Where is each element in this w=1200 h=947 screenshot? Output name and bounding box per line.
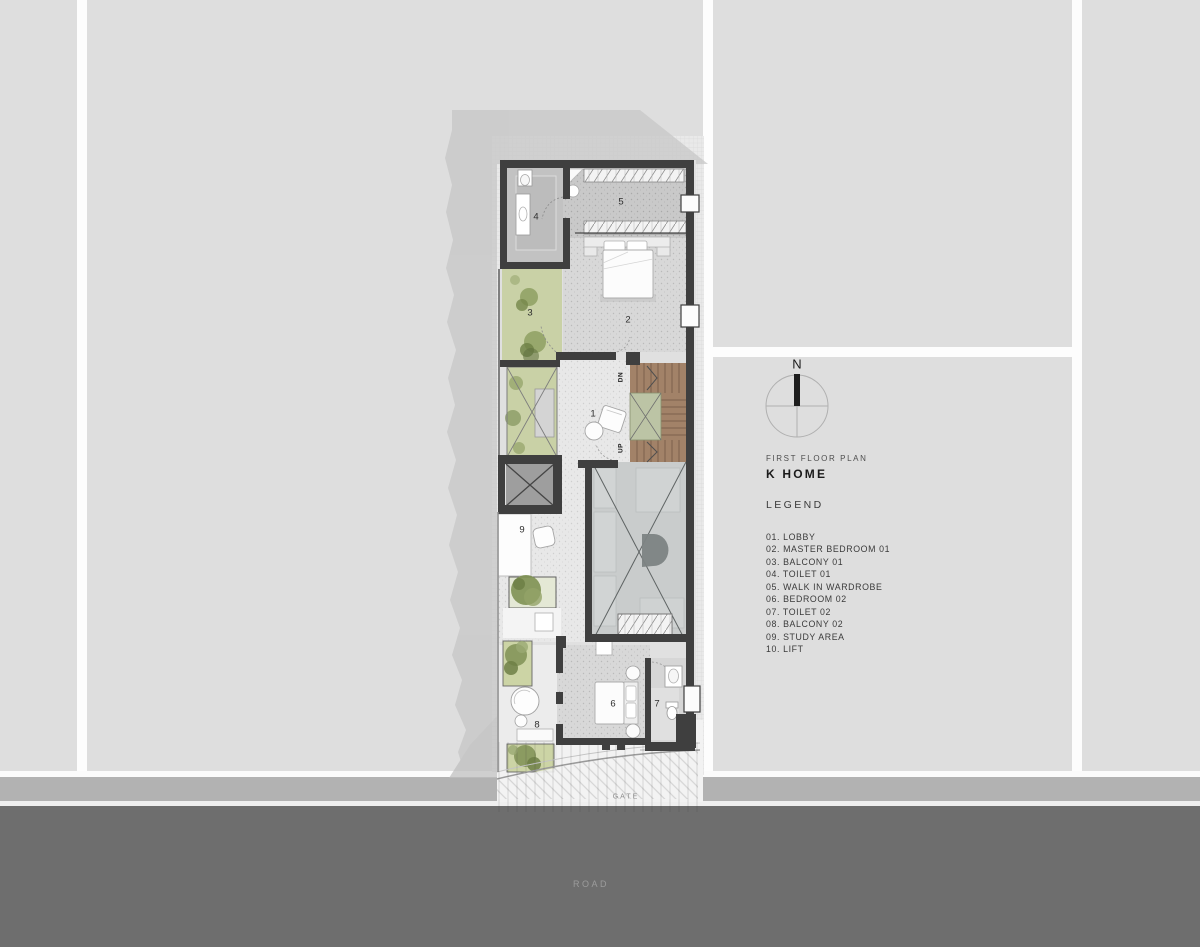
legend-heading: LEGEND [766, 499, 824, 511]
label-walk-in-wardrobe: 5 [618, 197, 623, 208]
label-master-bedroom-01: 2 [625, 315, 630, 326]
label-bedroom-02: 6 [610, 699, 615, 710]
stair-up-label: UP [618, 443, 625, 453]
gate-label: GATE [613, 794, 640, 801]
north-arrow-icon [766, 374, 828, 437]
legend-item: 10. LIFT [766, 643, 890, 655]
road-label: ROAD [573, 879, 609, 889]
legend-item: 01. LOBBY [766, 531, 890, 543]
label-study-area: 9 [519, 525, 524, 536]
label-balcony-01: 3 [527, 308, 532, 319]
label-toilet-02: 7 [654, 699, 659, 710]
driveway [497, 742, 703, 812]
label-lobby: 1 [590, 409, 595, 420]
legend-item: 07. TOILET 02 [766, 606, 890, 618]
legend-list: 01. LOBBY 02. MASTER BEDROOM 01 03. BALC… [766, 531, 890, 656]
legend-item: 02. MASTER BEDROOM 01 [766, 543, 890, 555]
label-toilet-01: 4 [533, 212, 538, 223]
legend-item: 06. BEDROOM 02 [766, 593, 890, 605]
label-balcony-02: 8 [534, 720, 539, 731]
void-over-living [592, 462, 686, 642]
project-title: K HOME [766, 467, 827, 481]
legend-item: 05. WALK IN WARDROBE [766, 581, 890, 593]
plan-type-title: FIRST FLOOR PLAN [766, 454, 867, 463]
site-plan-sheet: 1 2 3 4 5 6 7 8 9 DN UP GATE ROAD N FIRS… [0, 0, 1200, 947]
legend-item: 08. BALCONY 02 [766, 618, 890, 630]
legend-item: 09. STUDY AREA [766, 631, 890, 643]
floor-plan-drawing [0, 0, 1200, 947]
legend-item: 03. BALCONY 01 [766, 556, 890, 568]
legend-item: 04. TOILET 01 [766, 568, 890, 580]
stair-down-label: DN [618, 372, 625, 382]
north-label: N [792, 357, 801, 372]
pergola-lines [497, 742, 703, 812]
